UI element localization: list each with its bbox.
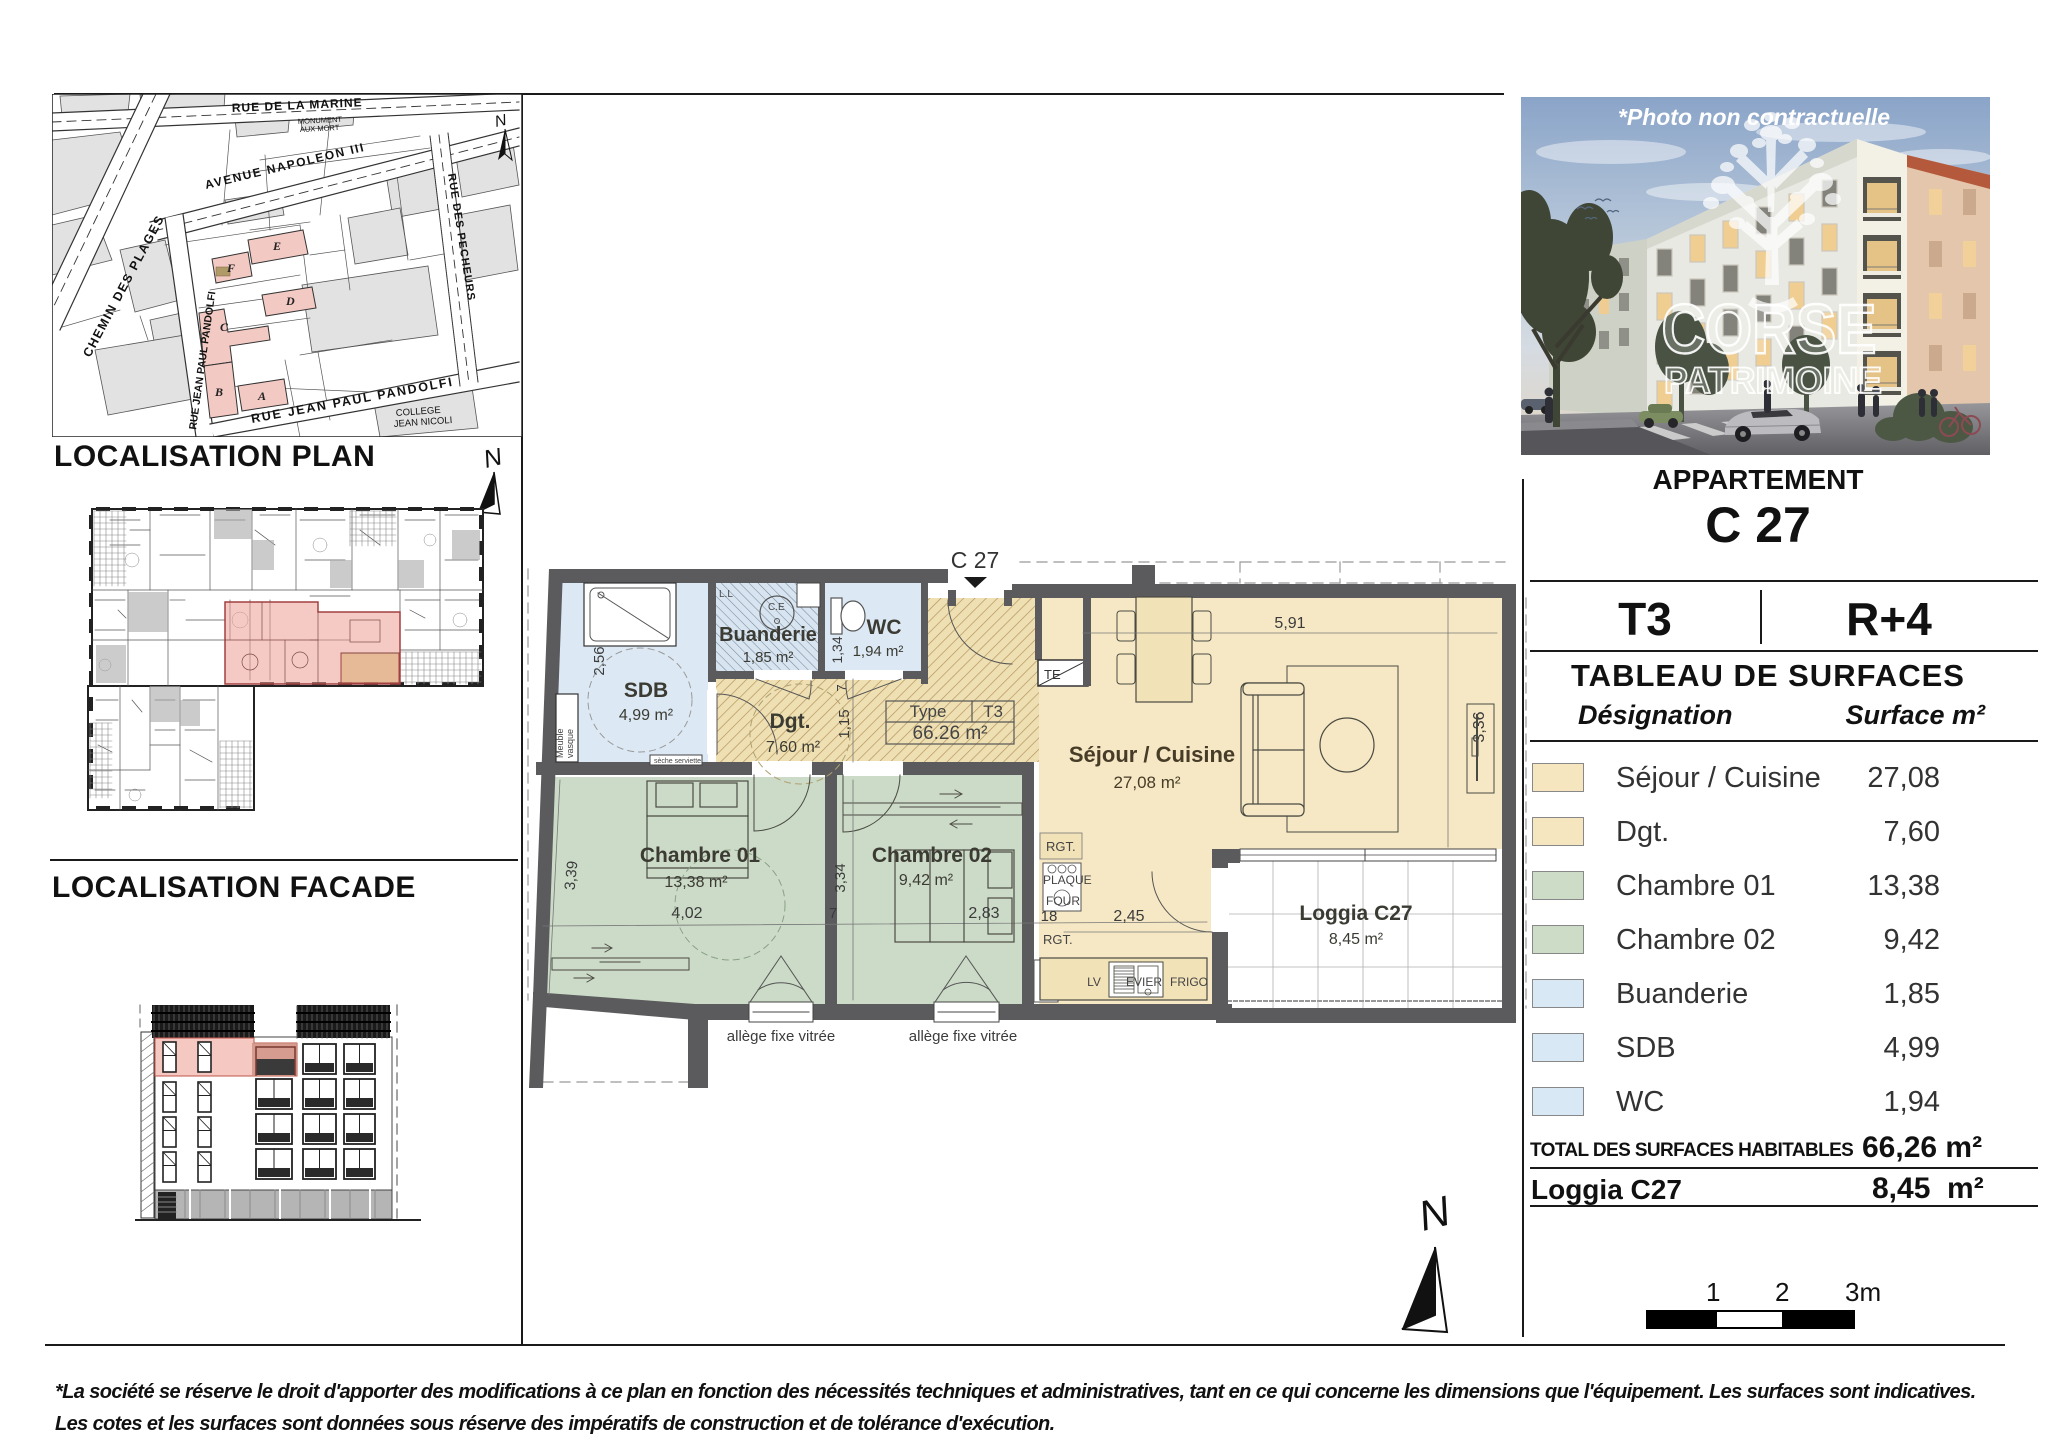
svg-text:E: E [272,239,281,253]
svg-text:1,34: 1,34 [829,636,845,663]
svg-text:7: 7 [829,905,837,922]
svg-text:3,34: 3,34 [832,863,849,892]
svg-text:WC: WC [867,616,902,639]
svg-text:allège fixe vitrée: allège fixe vitrée [727,1028,835,1045]
svg-text:Chambre 01: Chambre 01 [640,844,761,867]
svg-text:2,45: 2,45 [1113,908,1144,925]
svg-text:C.E: C.E [768,602,785,613]
svg-text:PATRIMOINE: PATRIMOINE [1664,360,1882,401]
svg-text:7,60 m²: 7,60 m² [766,739,821,756]
svg-text:FRIGO: FRIGO [1170,975,1208,989]
svg-text:sèche serviette: sèche serviette [654,758,701,765]
svg-text:N: N [1414,1195,1455,1240]
svg-text:1,94 m²: 1,94 m² [853,643,904,660]
svg-text:LV: LV [1087,975,1101,989]
svg-text:1,85 m²: 1,85 m² [743,649,794,666]
svg-text:5,91: 5,91 [1274,615,1305,632]
svg-text:C 27: C 27 [951,547,1000,573]
svg-text:Séjour / Cuisine: Séjour / Cuisine [1069,742,1235,767]
svg-text:T3: T3 [983,702,1003,721]
svg-text:Dgt.: Dgt. [770,710,811,733]
svg-text:vasque: vasque [565,729,575,758]
svg-text:A: A [257,389,266,403]
svg-text:N: N [481,448,506,474]
svg-text:2,56: 2,56 [591,646,608,675]
svg-text:B: B [214,385,223,399]
svg-text:9,42 m²: 9,42 m² [899,872,954,889]
svg-text:Buanderie: Buanderie [719,624,817,646]
svg-text:8,45 m²: 8,45 m² [1329,931,1384,948]
svg-text:allège fixe vitrée: allège fixe vitrée [909,1028,1017,1045]
svg-text:RGT.: RGT. [1046,839,1076,854]
svg-text:Loggia C27: Loggia C27 [1299,902,1412,925]
svg-text:4,02: 4,02 [671,905,702,922]
svg-text:C: C [220,320,229,334]
svg-text:3,39: 3,39 [562,860,582,891]
svg-text:66.26 m²: 66.26 m² [913,723,988,744]
svg-text:EVIER: EVIER [1126,975,1162,989]
svg-text:Meuble: Meuble [555,728,565,758]
svg-text:CORSE: CORSE [1662,290,1877,368]
svg-text:4,99 m²: 4,99 m² [619,707,674,724]
svg-text:TE: TE [1044,667,1061,682]
svg-text:*Photo non contractuelle: *Photo non contractuelle [1618,104,1890,130]
svg-text:18: 18 [1041,908,1058,925]
svg-text:Type: Type [910,702,947,721]
svg-text:RGT.: RGT. [1043,932,1073,947]
svg-text:D: D [285,294,295,308]
svg-text:F: F [226,261,235,275]
svg-text:SDB: SDB [624,679,668,702]
svg-text:2,83: 2,83 [968,905,999,922]
svg-text:1,15: 1,15 [836,709,853,738]
svg-text:PLAQUE: PLAQUE [1043,873,1092,887]
svg-text:27,08 m²: 27,08 m² [1113,773,1180,792]
svg-text:13,38 m²: 13,38 m² [664,874,728,891]
svg-text:L.L: L.L [719,589,733,600]
svg-text:Chambre 02: Chambre 02 [872,844,992,867]
